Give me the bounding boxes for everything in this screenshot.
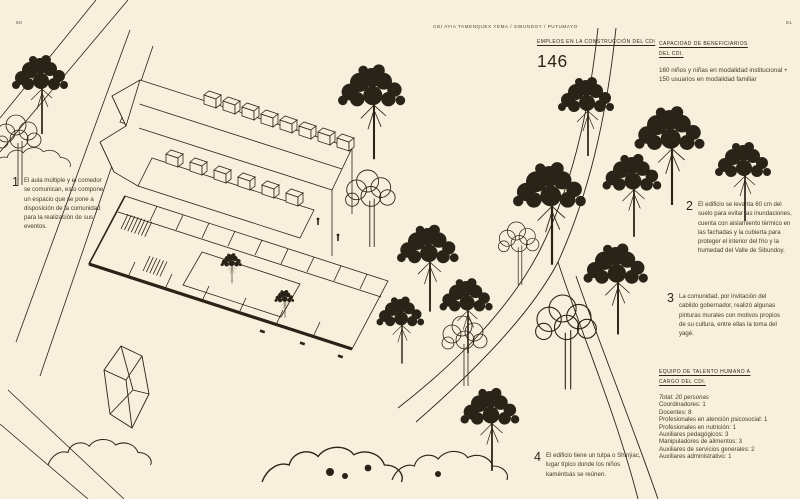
annotation-4: 4 El edificio tiene un tulpa o Shinÿac, …: [534, 451, 654, 479]
annotation-1-text: El aula múltiple y el comedor se comunic…: [24, 176, 110, 232]
team-title: EQUIPO DE TALENTO HUMANO A CARGO DEL CDI…: [659, 368, 761, 387]
annotation-2-number: 2: [686, 200, 693, 256]
team-item: Auxiliares administrativo: 1: [659, 453, 799, 460]
team-item: Docentes: 8: [659, 409, 799, 416]
team-total: Total: 20 personas: [659, 394, 799, 401]
annotation-3-text: La comunidad, por invitación del cabildo…: [679, 292, 787, 338]
annotation-2: 2 El edificio se levanta 60 cm del suelo…: [686, 200, 798, 256]
team-item: Profesionales en atención psicosocial: 1: [659, 416, 799, 423]
jobs-stat-title: EMPLEOS EN LA CONSTRUCCIÓN DEL CDI: [537, 38, 649, 48]
team-item: Auxiliares de servicios generales: 2: [659, 446, 799, 453]
annotation-3-number: 3: [667, 292, 674, 338]
jobs-stat-block: EMPLEOS EN LA CONSTRUCCIÓN DEL CDI 146: [537, 38, 649, 72]
axonometric-building: [89, 80, 388, 358]
team-item: Coordinadores: 1: [659, 401, 799, 408]
capacity-block: CAPACIDAD DE BENEFICIARIOS DEL CDI. 160 …: [659, 40, 795, 85]
annotation-4-text: El edificio tiene un tulpa o Shinÿac, lu…: [546, 451, 646, 479]
annotation-4-number: 4: [534, 451, 541, 479]
page-number-left: 60: [16, 21, 22, 26]
annotation-1: 1 El aula múltiple y el comedor se comun…: [12, 176, 114, 232]
running-header: CDI AYIA TAMENQUEX YEMA / SIBUNDOY / PUT…: [433, 24, 578, 29]
team-item: Auxiliares pedagógicos: 3: [659, 431, 799, 438]
team-item: Manipuladores de alimentos: 3: [659, 438, 799, 445]
capacity-body: 160 niños y niñas en modalidad instituci…: [659, 66, 791, 85]
team-block: EQUIPO DE TALENTO HUMANO A CARGO DEL CDI…: [659, 368, 799, 461]
annotation-3: 3 La comunidad, por invitación del cabil…: [667, 292, 795, 338]
page-number-right: 61: [786, 21, 792, 26]
house: [104, 346, 149, 428]
team-item: Profesionales en nutrición: 1: [659, 424, 799, 431]
annotation-2-text: El edificio se levanta 60 cm del suelo p…: [698, 200, 793, 256]
jobs-stat-value: 146: [537, 51, 649, 72]
annotation-1-number: 1: [12, 176, 19, 232]
capacity-title: CAPACIDAD DE BENEFICIARIOS DEL CDI.: [659, 40, 751, 59]
team-list: Total: 20 personas Coordinadores: 1 Doce…: [659, 394, 799, 461]
